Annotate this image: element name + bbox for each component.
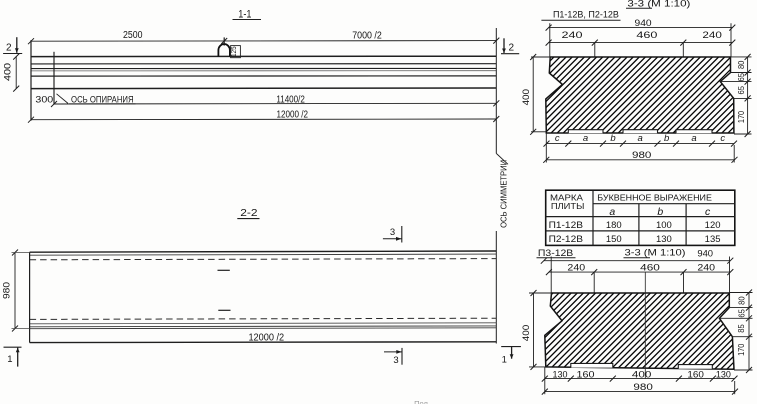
svg-text:12000 /2: 12000 /2 xyxy=(248,332,284,343)
svg-text:240: 240 xyxy=(567,262,585,273)
svg-text:2: 2 xyxy=(6,43,12,54)
svg-text:1: 1 xyxy=(7,354,12,365)
svg-text:460: 460 xyxy=(636,30,657,41)
svg-text:400: 400 xyxy=(521,325,531,341)
svg-text:c: c xyxy=(555,133,560,144)
svg-text:85: 85 xyxy=(736,324,746,333)
svg-text:П1-12В, П2-12В: П1-12В, П2-12В xyxy=(553,9,619,20)
svg-text:П1-12В: П1-12В xyxy=(549,220,583,230)
svg-text:a: a xyxy=(638,133,643,144)
svg-text:1: 1 xyxy=(502,354,507,365)
svg-text:3: 3 xyxy=(390,227,395,238)
svg-text:ПЛИТЫ: ПЛИТЫ xyxy=(551,201,585,211)
svg-text:150: 150 xyxy=(606,234,622,244)
svg-text:460: 460 xyxy=(640,262,660,273)
svg-text:80: 80 xyxy=(736,296,746,305)
svg-text:130: 130 xyxy=(553,370,568,380)
svg-text:1-1: 1-1 xyxy=(238,9,251,21)
svg-text:a: a xyxy=(583,133,588,144)
svg-text:160: 160 xyxy=(577,370,595,380)
svg-text:120: 120 xyxy=(705,220,721,230)
svg-text:БУКВЕННОЕ ВЫРАЖЕНИЕ: БУКВЕННОЕ ВЫРАЖЕНИЕ xyxy=(597,193,712,203)
svg-text:3: 3 xyxy=(393,355,398,366)
svg-text:2500: 2500 xyxy=(123,30,143,41)
svg-text:Пол: Пол xyxy=(414,399,428,404)
svg-text:980: 980 xyxy=(632,150,651,161)
svg-text:240: 240 xyxy=(697,262,715,273)
svg-text:b: b xyxy=(610,133,615,144)
svg-text:240: 240 xyxy=(562,30,583,41)
svg-text:400: 400 xyxy=(2,63,12,81)
svg-text:2-2: 2-2 xyxy=(240,207,257,219)
svg-text:130: 130 xyxy=(716,370,731,380)
svg-text:П2-12В: П2-12В xyxy=(549,234,583,244)
svg-text:П3-12В: П3-12В xyxy=(538,247,573,258)
svg-text:100: 100 xyxy=(656,220,672,230)
svg-text:400: 400 xyxy=(632,370,652,380)
svg-text:11400/2: 11400/2 xyxy=(276,95,305,106)
svg-text:ОСЬ ОПИРАНИЯ: ОСЬ ОПИРАНИЯ xyxy=(71,94,134,104)
svg-text:a: a xyxy=(609,206,615,218)
svg-text:c: c xyxy=(705,206,711,218)
svg-text:ОСЬ СИММЕТРИИ: ОСЬ СИММЕТРИИ xyxy=(498,160,508,228)
svg-text:a: a xyxy=(691,133,696,144)
svg-text:b: b xyxy=(664,133,669,144)
svg-text:130: 130 xyxy=(656,234,672,244)
svg-text:940: 940 xyxy=(635,17,652,28)
svg-text:65: 65 xyxy=(736,73,746,82)
svg-text:980: 980 xyxy=(2,282,12,299)
svg-text:160: 160 xyxy=(687,370,704,380)
svg-text:65: 65 xyxy=(736,86,746,95)
svg-text:125: 125 xyxy=(229,46,238,57)
svg-text:c: c xyxy=(720,133,725,144)
svg-text:170: 170 xyxy=(736,111,746,123)
svg-text:170: 170 xyxy=(736,343,746,355)
svg-text:400: 400 xyxy=(521,89,531,105)
svg-text:180: 180 xyxy=(606,220,622,230)
svg-text:940: 940 xyxy=(697,248,713,258)
svg-text:980: 980 xyxy=(633,382,652,393)
svg-text:135: 135 xyxy=(705,234,721,244)
svg-text:2: 2 xyxy=(509,42,515,53)
svg-text:240: 240 xyxy=(702,30,722,41)
svg-text:b: b xyxy=(657,206,663,218)
svg-text:3-3 (М 1:10): 3-3 (М 1:10) xyxy=(627,0,690,8)
svg-text:3-3 (М 1:10): 3-3 (М 1:10) xyxy=(625,247,686,258)
svg-text:7000 /2: 7000 /2 xyxy=(352,31,382,42)
svg-text:300: 300 xyxy=(35,95,53,105)
svg-text:12000 /2: 12000 /2 xyxy=(277,110,309,121)
svg-text:80: 80 xyxy=(736,60,746,69)
svg-text:65: 65 xyxy=(736,309,746,318)
